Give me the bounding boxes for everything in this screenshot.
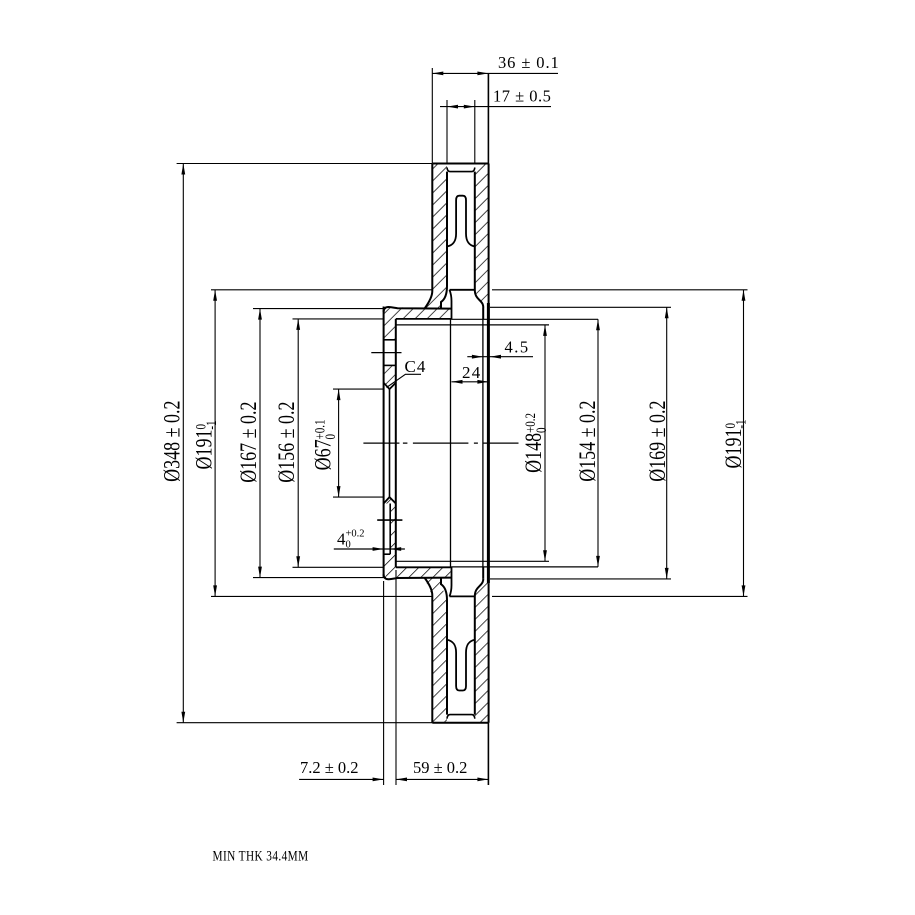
svg-text:C4: C4	[405, 357, 427, 376]
svg-text:4.5: 4.5	[505, 338, 530, 357]
svg-text:Ø156 ± 0.2: Ø156 ± 0.2	[273, 401, 300, 482]
svg-text:Ø169 ± 0.2: Ø169 ± 0.2	[644, 400, 671, 481]
svg-text:Ø154 ± 0.2: Ø154 ± 0.2	[574, 400, 601, 481]
svg-text:17 ± 0.5: 17 ± 0.5	[493, 87, 551, 106]
svg-text:Ø1910-1: Ø1910-1	[190, 420, 219, 469]
svg-text:MIN THK 34.4MM: MIN THK 34.4MM	[213, 847, 309, 864]
svg-text:7.2 ± 0.2: 7.2 ± 0.2	[300, 758, 359, 777]
svg-text:24: 24	[462, 363, 481, 382]
svg-text:59 ± 0.2: 59 ± 0.2	[413, 758, 467, 777]
svg-text:Ø348 ± 0.2: Ø348 ± 0.2	[158, 400, 185, 481]
svg-text:Ø167 ± 0.2: Ø167 ± 0.2	[235, 401, 262, 482]
svg-text:36 ± 0.1: 36 ± 0.1	[498, 53, 560, 72]
svg-text:Ø1910-1: Ø1910-1	[720, 419, 749, 468]
